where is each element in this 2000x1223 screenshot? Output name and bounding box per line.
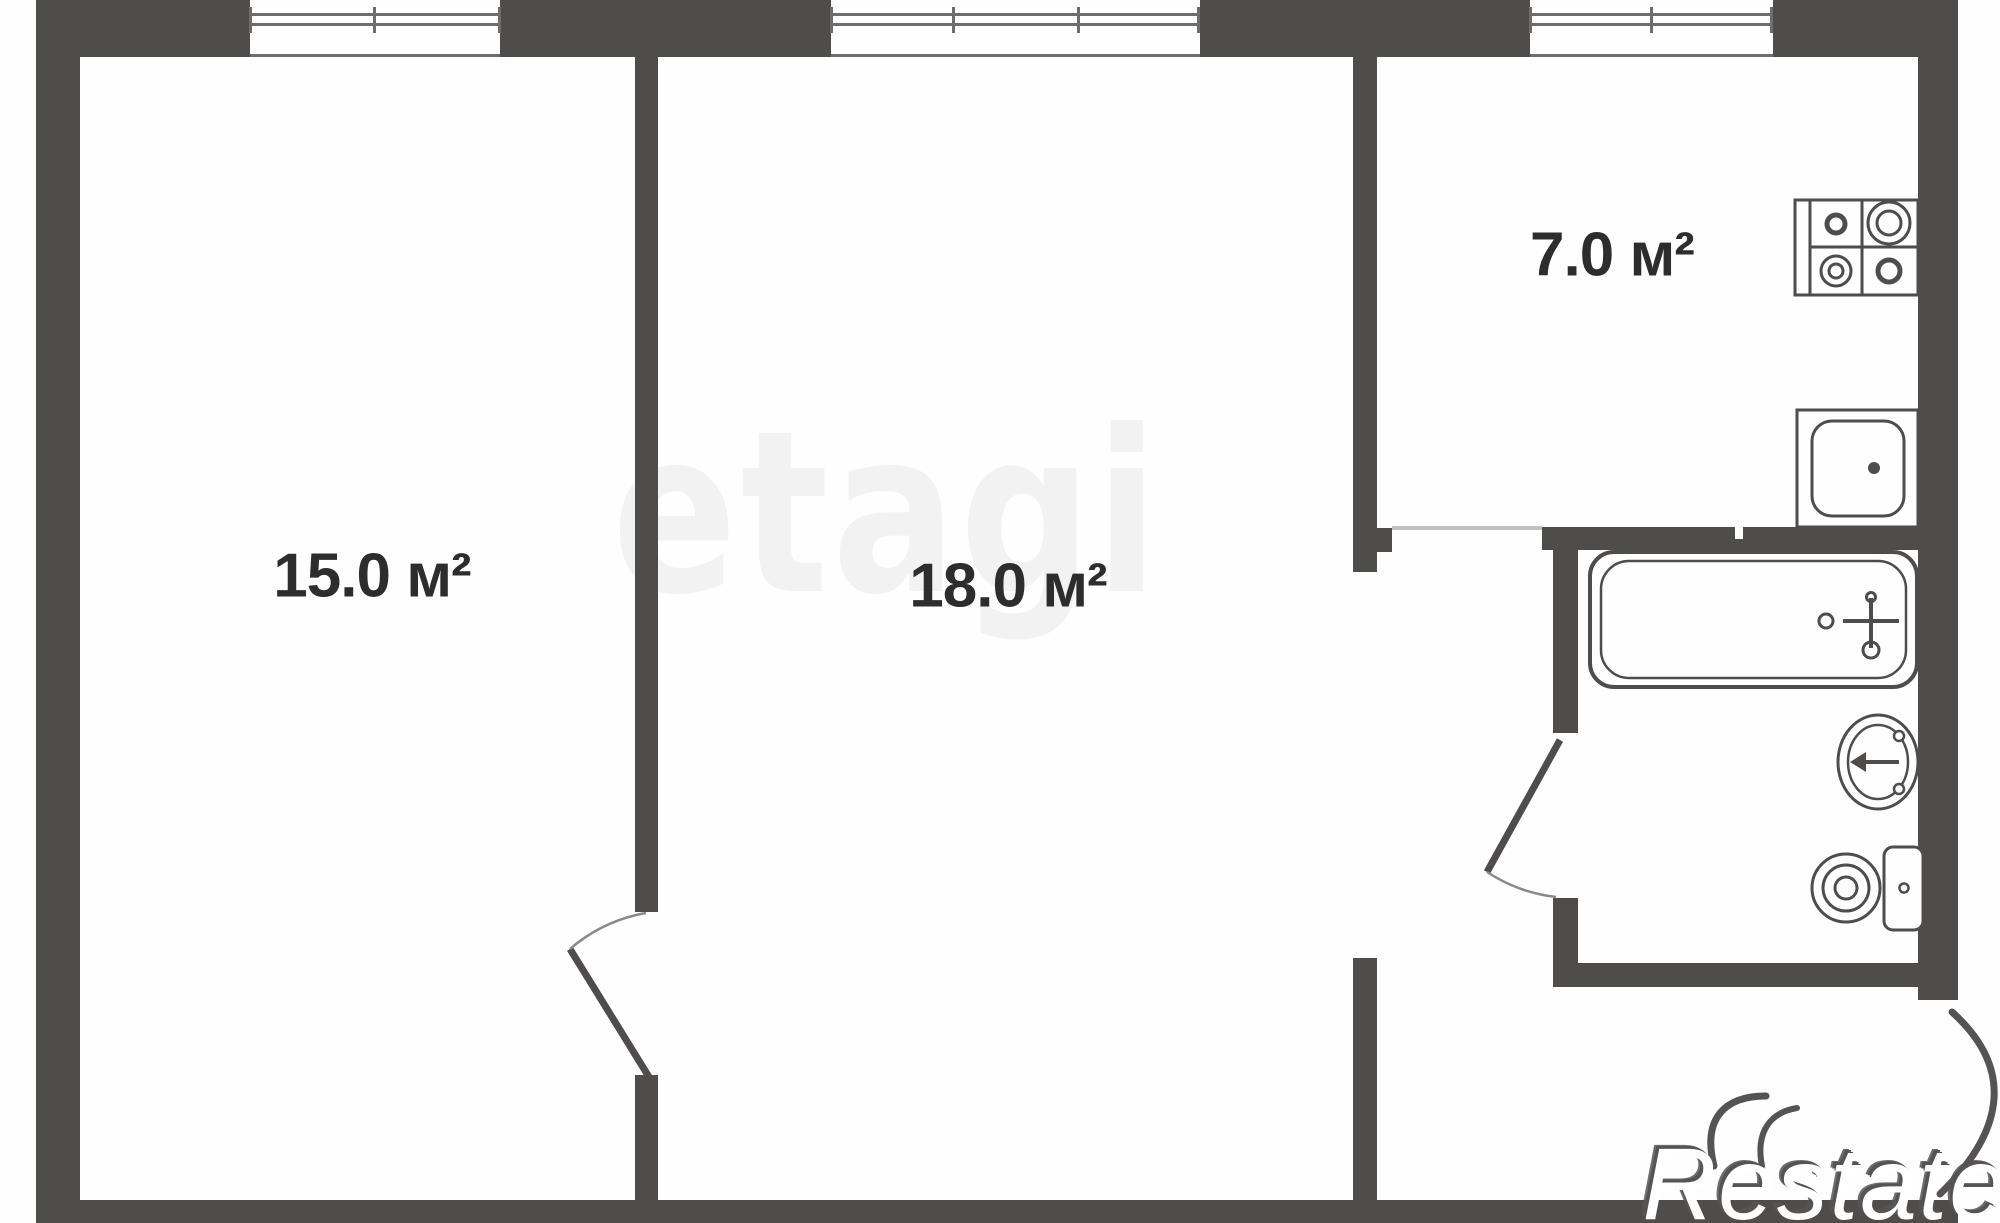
washbasin-icon: [1838, 715, 1918, 809]
bathtub-icon: [1590, 552, 1917, 687]
stove-icon: [1795, 200, 1918, 295]
door-room-1: [570, 913, 649, 1077]
kitchen-sink-icon: [1797, 410, 1918, 527]
toilet-icon: [1812, 847, 1923, 930]
watermark-restate: Restate: [1642, 1133, 2000, 1223]
floor-plan: etagi: [0, 0, 2000, 1223]
kitchen-area-label: 7.0 м²: [1530, 220, 1694, 291]
door-bathroom: [1487, 740, 1560, 897]
room-1-area-label: 15.0 м²: [273, 541, 470, 612]
room-2-area-label: 18.0 м²: [909, 551, 1106, 622]
